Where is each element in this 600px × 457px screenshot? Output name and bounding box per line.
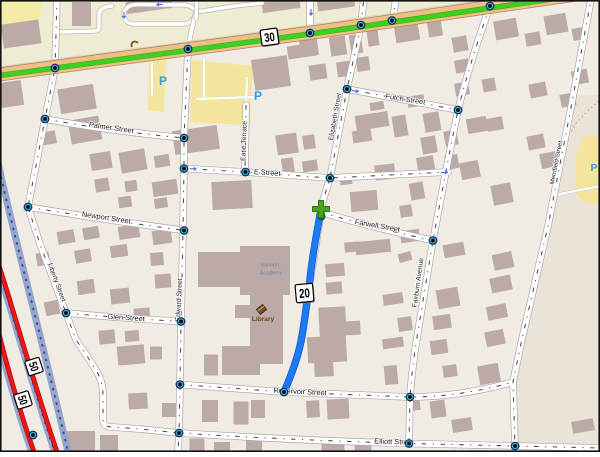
svg-text:P: P (254, 89, 262, 103)
svg-text:E Street: E Street (254, 167, 281, 178)
svg-text:P: P (159, 74, 167, 88)
svg-text:Vanerin: Vanerin (261, 263, 279, 269)
svg-text:20: 20 (298, 285, 310, 301)
svg-text:Eatie Terrace: Eatie Terrace (240, 121, 248, 161)
svg-text:P: P (590, 162, 597, 174)
svg-text:Academy: Academy (260, 271, 283, 277)
svg-text:30: 30 (263, 30, 275, 45)
svg-text:Elliott Stre: Elliott Stre (374, 437, 408, 447)
svg-text:Library: Library (252, 316, 275, 323)
